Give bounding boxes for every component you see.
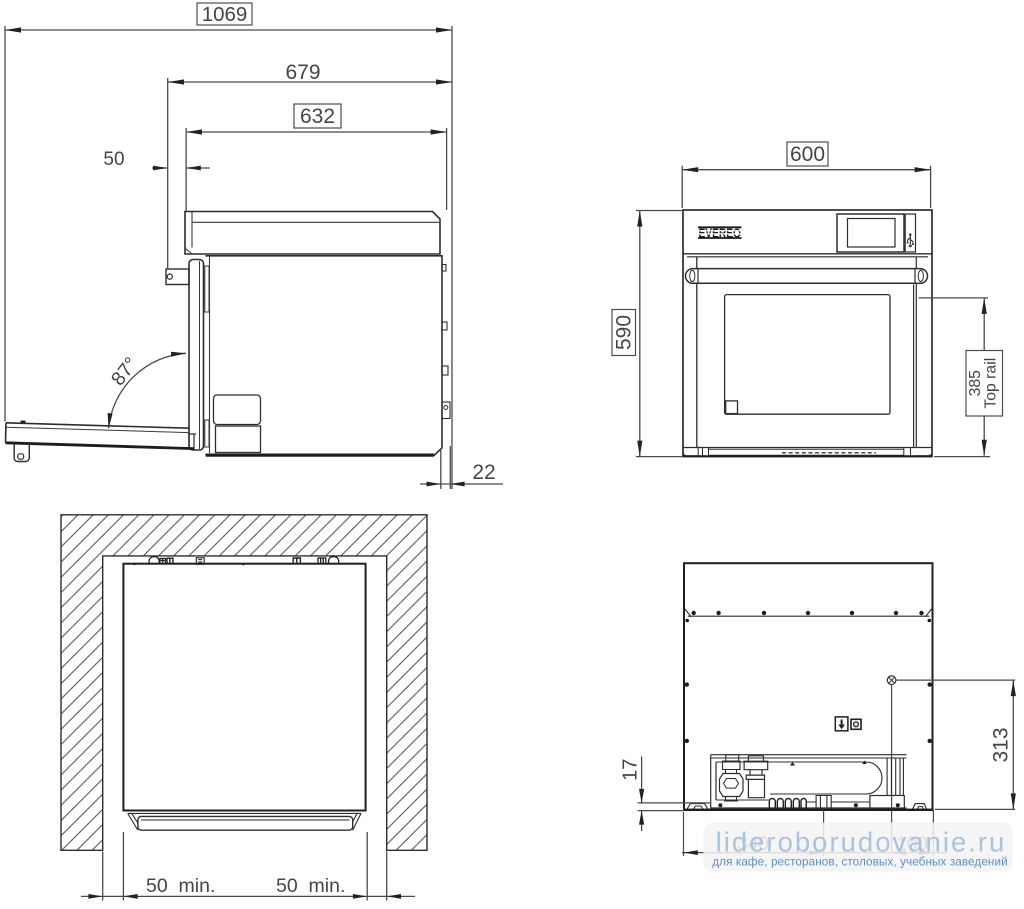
svg-text:22: 22 xyxy=(472,461,495,484)
svg-text:50 min.: 50 min. xyxy=(276,875,345,897)
svg-text:50: 50 xyxy=(103,149,124,170)
svg-text:17: 17 xyxy=(620,759,642,781)
svg-text:1069: 1069 xyxy=(202,3,248,26)
svg-text:632: 632 xyxy=(300,105,335,128)
svg-text:для кафе, ресторанов, столовых: для кафе, ресторанов, столовых, учебных … xyxy=(712,856,1007,869)
svg-text:50 min.: 50 min. xyxy=(146,875,215,897)
svg-text:679: 679 xyxy=(285,61,320,84)
svg-text:lideroborudovanie.ru: lideroborudovanie.ru xyxy=(716,827,1007,858)
svg-text:600: 600 xyxy=(790,143,825,166)
svg-text:Top rail: Top rail xyxy=(983,358,1000,409)
svg-text:590: 590 xyxy=(613,315,636,350)
svg-text:313: 313 xyxy=(990,727,1013,762)
svg-text:385: 385 xyxy=(967,370,984,397)
